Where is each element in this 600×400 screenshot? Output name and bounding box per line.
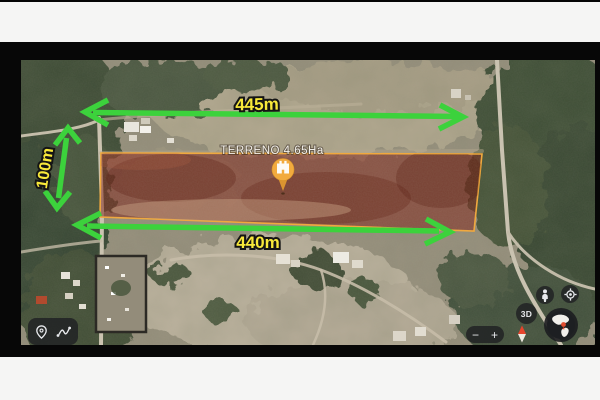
satellite-map[interactable]: 445m 100m 440m TERRENO 4.65Ha (21, 60, 595, 345)
bottom-bar (0, 357, 600, 400)
globe-americas-icon (546, 310, 576, 340)
top-bar (0, 2, 600, 42)
my-location-button[interactable] (561, 285, 579, 303)
zoom-controls[interactable]: − + (466, 326, 504, 343)
zoom-in-button[interactable]: + (491, 329, 498, 341)
3d-mode-label: 3D (521, 309, 532, 319)
measure-label-top: 445m (235, 95, 279, 115)
tools-panel[interactable] (28, 318, 78, 345)
globe-button[interactable] (544, 308, 578, 342)
location-pin-icon[interactable] (34, 324, 49, 340)
measure-path-icon[interactable] (56, 324, 72, 339)
street-view-button[interactable] (536, 286, 554, 304)
3d-mode-button[interactable]: 3D (516, 303, 537, 324)
map-viewport[interactable]: 445m 100m 440m TERRENO 4.65Ha (21, 60, 595, 345)
letterbox-frame: 445m 100m 440m TERRENO 4.65Ha (0, 42, 600, 357)
pegman-icon (539, 289, 551, 302)
my-location-icon (564, 288, 577, 301)
measure-label-bottom: 440m (236, 233, 279, 252)
compass-needle-icon[interactable] (516, 325, 528, 343)
screen: 445m 100m 440m TERRENO 4.65Ha (0, 0, 600, 400)
zoom-out-button[interactable]: − (472, 329, 479, 341)
parcel-label: TERRENO 4.65Ha (220, 145, 324, 157)
